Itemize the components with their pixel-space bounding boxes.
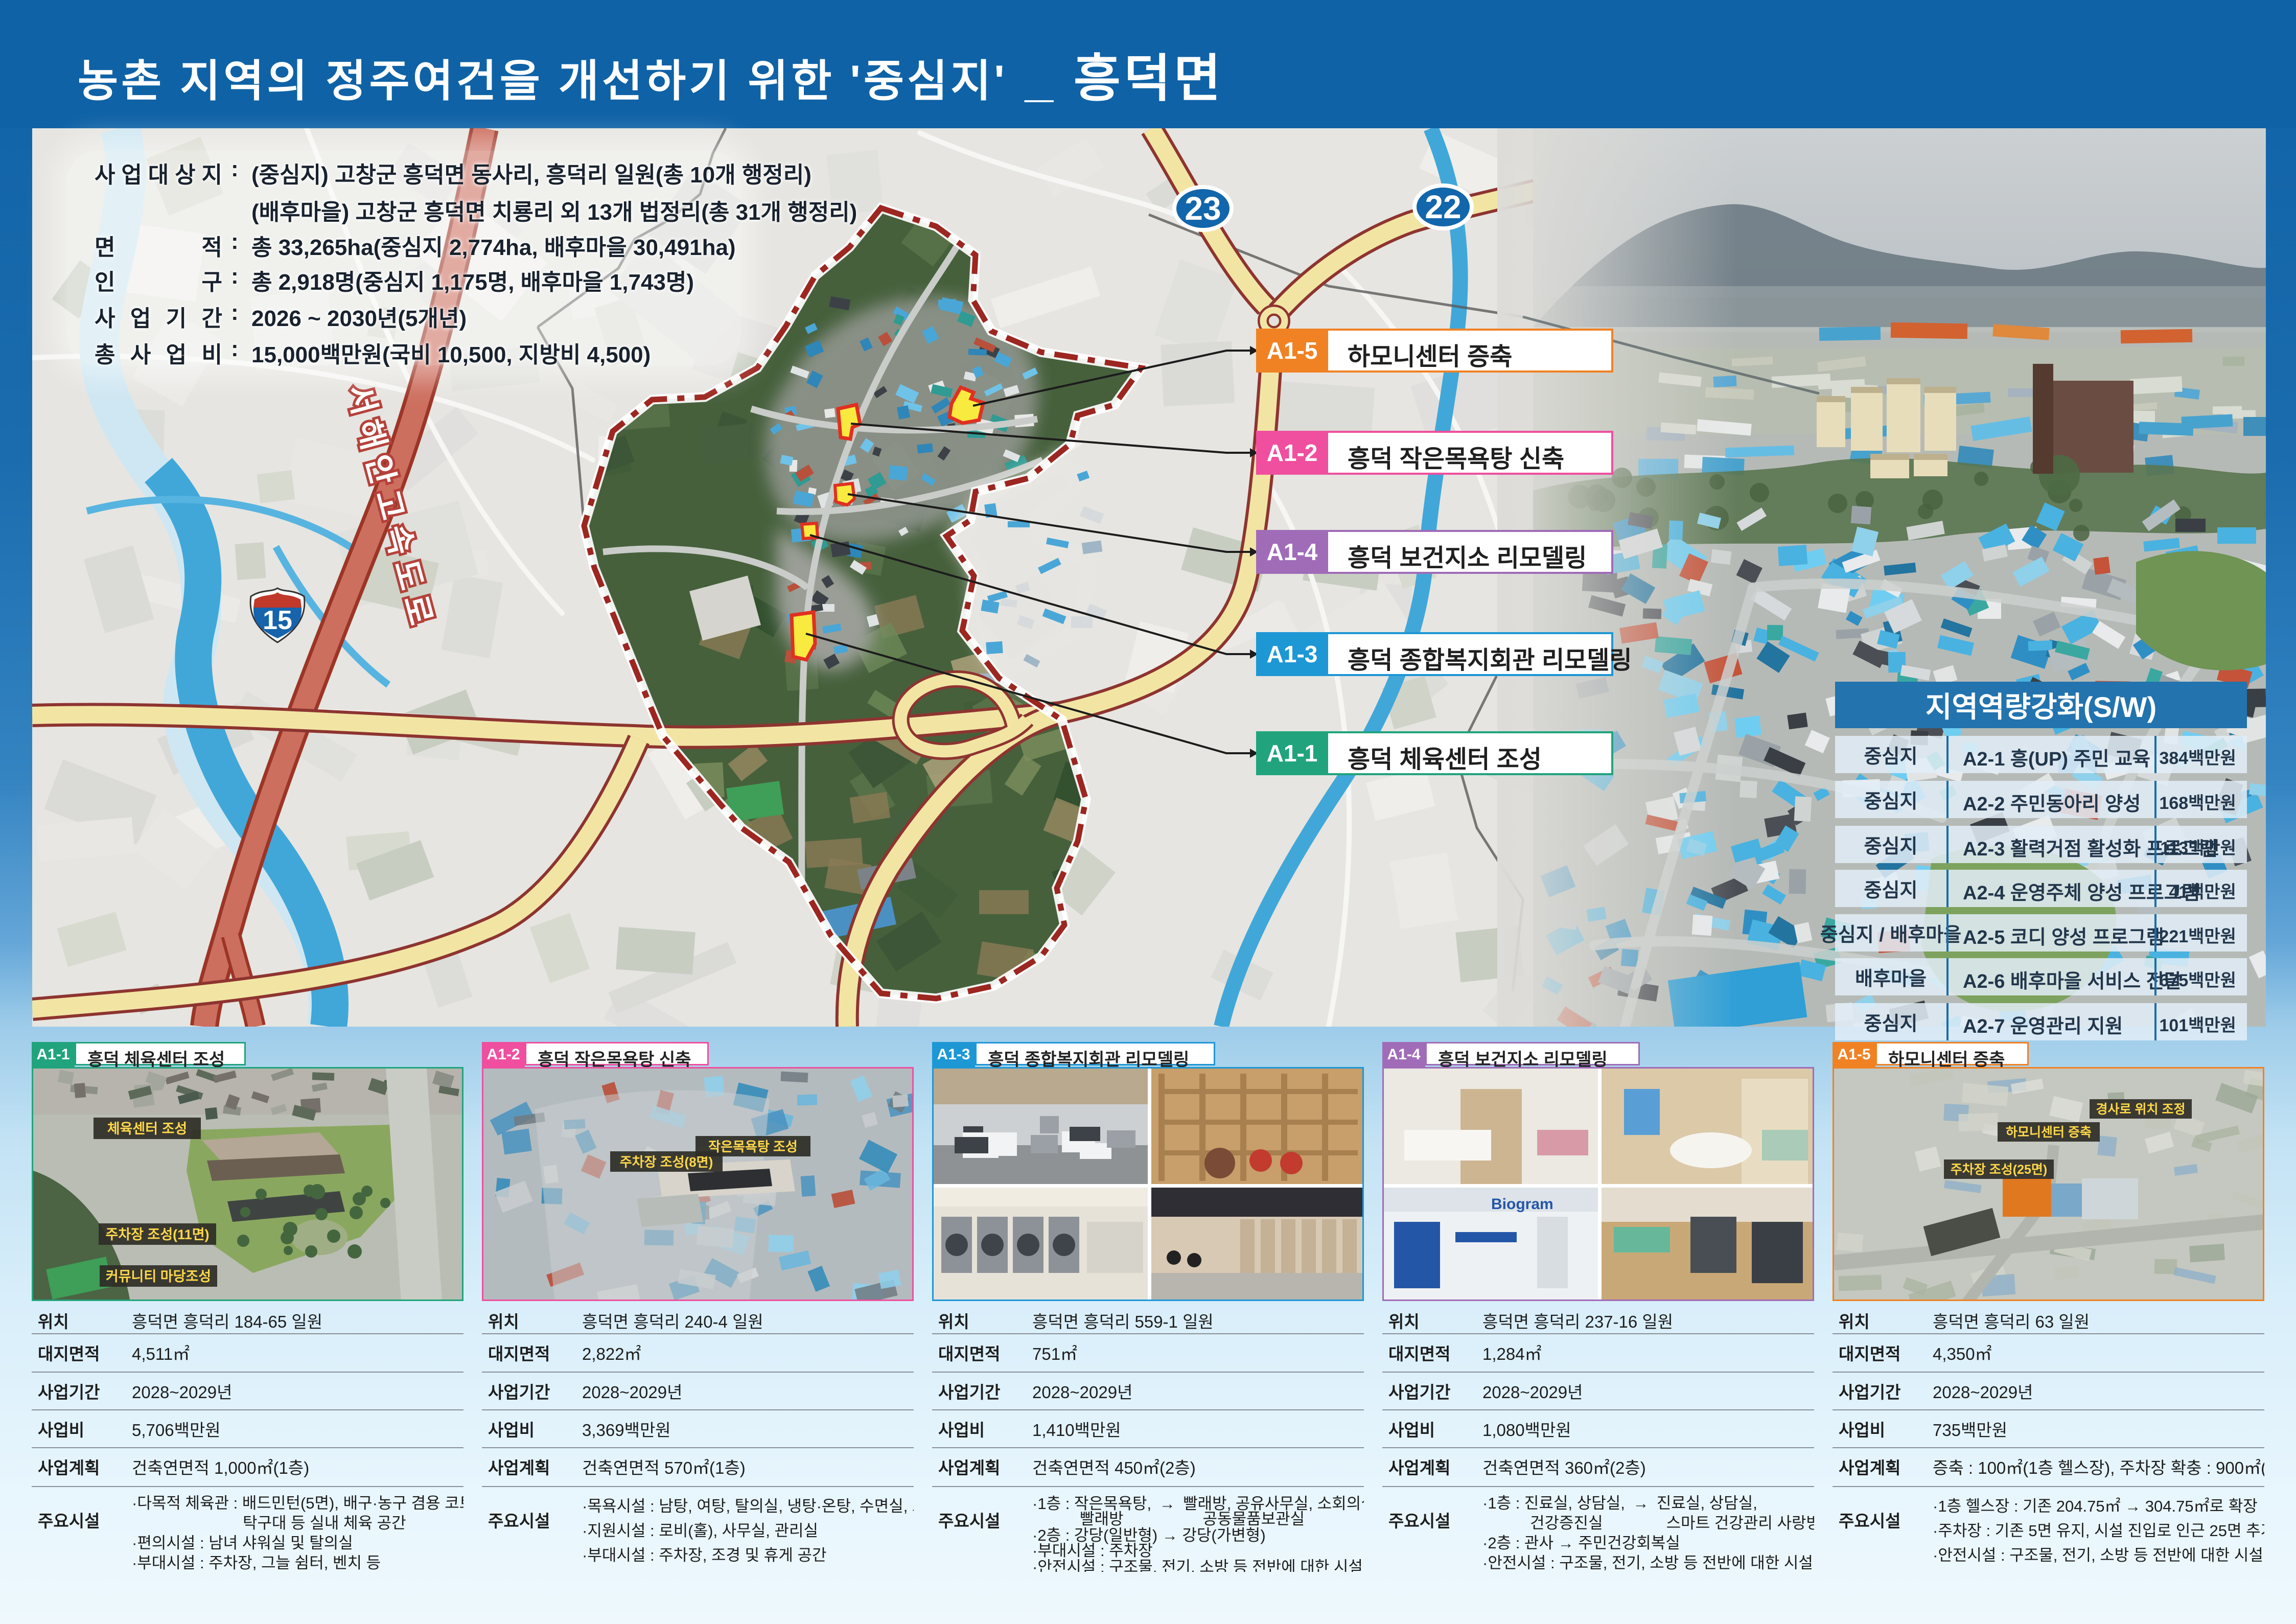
svg-text:주차장 조성(11면): 주차장 조성(11면)	[105, 1227, 209, 1242]
svg-text:15: 15	[263, 606, 292, 635]
svg-text:하모니센터 증축: 하모니센터 증축	[2006, 1125, 2092, 1140]
svg-text:체육센터 조성: 체육센터 조성	[107, 1121, 188, 1136]
svg-text:커뮤니티 마당조성: 커뮤니티 마당조성	[106, 1269, 211, 1284]
svg-text:23: 23	[1185, 190, 1221, 227]
svg-text:22: 22	[1425, 189, 1461, 225]
svg-text:주차장 조성(25면): 주차장 조성(25면)	[1951, 1163, 2047, 1177]
svg-text:경사로 위치 조정: 경사로 위치 조정	[2096, 1102, 2186, 1117]
svg-text:Biogram: Biogram	[1491, 1196, 1553, 1213]
svg-text:작은목욕탕 조성: 작은목욕탕 조성	[708, 1139, 798, 1154]
svg-text:주차장 조성(8면): 주차장 조성(8면)	[620, 1154, 713, 1170]
